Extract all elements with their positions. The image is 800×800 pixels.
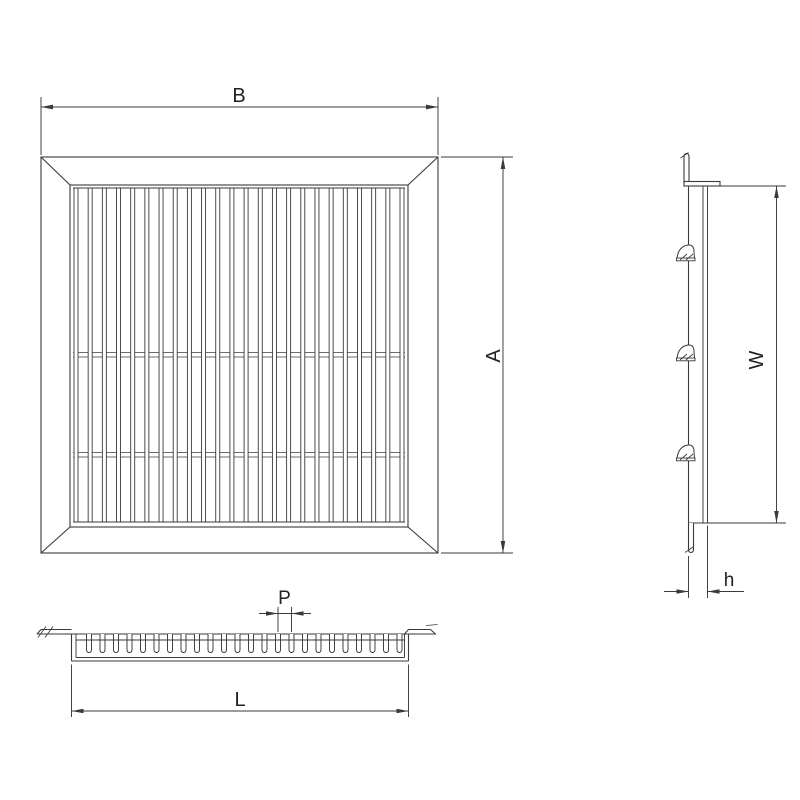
slat-tooth: [303, 634, 308, 653]
arrowhead-down: [501, 541, 506, 553]
dimension-B: B: [41, 85, 438, 155]
break-tick: [45, 627, 53, 638]
grille-slat: [357, 188, 361, 522]
slat-tooth: [384, 634, 389, 653]
top-flange-stub: [684, 154, 689, 184]
grille-slat: [315, 188, 319, 522]
slat-tooth: [208, 634, 213, 653]
side-view: W h: [664, 153, 786, 599]
slat-tooth: [397, 634, 402, 653]
grille-slat: [343, 188, 347, 522]
mounting-clip: [677, 445, 696, 461]
mounting-clip: [677, 345, 696, 361]
dimension-h: h: [664, 526, 744, 599]
clip-spring-arc: [677, 245, 695, 258]
grille-slat: [202, 188, 206, 522]
clip-spring-arc: [677, 345, 695, 358]
mounting-clips: [677, 245, 696, 461]
grille-slat: [329, 188, 333, 522]
arrowhead-down: [774, 511, 779, 523]
slat-tooth: [276, 634, 281, 653]
top-flange-leg: [684, 182, 720, 187]
arrowhead-left: [41, 105, 53, 110]
slat-tooth: [330, 634, 335, 653]
grille-slat: [301, 188, 305, 522]
arrowhead-up: [774, 186, 779, 198]
arrowhead-right: [397, 709, 409, 714]
bottom-section-view: P L: [37, 588, 438, 717]
dimension-P: P: [259, 588, 311, 632]
clip-base: [677, 458, 696, 461]
dimension-L: L: [72, 665, 409, 718]
break-tick: [426, 625, 438, 626]
left-flange-end: [37, 630, 41, 635]
slat-tooth: [154, 634, 159, 653]
right-flange-end: [431, 630, 436, 635]
grille-slat: [287, 188, 291, 522]
slat-tooth: [168, 634, 173, 653]
dimension-label-L: L: [234, 689, 245, 711]
dimension-label-h: h: [724, 570, 735, 591]
slat-tooth: [343, 634, 348, 653]
grille-slat: [400, 188, 404, 522]
slat-tooth: [249, 634, 254, 653]
grille-slat: [173, 188, 177, 522]
grille-slat: [159, 188, 163, 522]
grille-slat: [272, 188, 276, 522]
slat-tooth: [87, 634, 92, 653]
slat-tooth: [100, 634, 105, 653]
grille-slat: [131, 188, 135, 522]
grille-slat: [230, 188, 234, 522]
clip-base: [677, 258, 696, 261]
arrowhead-right: [266, 611, 278, 616]
grille-slat: [88, 188, 92, 522]
slat-tooth: [316, 634, 321, 653]
mounting-clip: [677, 245, 696, 261]
slat-tooth: [127, 634, 132, 653]
dimension-label-W: W: [746, 350, 768, 369]
grille-slat: [74, 188, 78, 522]
grille-slat: [216, 188, 220, 522]
slat-tooth: [181, 634, 186, 653]
slat-tooth: [222, 634, 227, 653]
clip-spring-arc: [677, 445, 695, 458]
right-flange-join: [405, 630, 409, 635]
slat-tooth: [114, 634, 119, 653]
slat-tooth: [289, 634, 294, 653]
arrowhead-right: [426, 105, 438, 110]
dimension-label-B: B: [232, 85, 245, 107]
grille-slat: [386, 188, 390, 522]
slat-tooth: [357, 634, 362, 653]
arrowhead-up: [501, 157, 506, 169]
drawing-sheet: B A W: [0, 0, 800, 800]
slat-tooth: [370, 634, 375, 653]
slat-tooth: [262, 634, 267, 653]
dimension-A: A: [441, 157, 513, 553]
grille-slat: [244, 188, 248, 522]
technical-drawing: B A W: [0, 0, 800, 800]
dimension-label-A: A: [483, 349, 505, 363]
slat-teeth: [87, 634, 403, 653]
slat-tooth: [141, 634, 146, 653]
arrowhead-left: [292, 611, 304, 616]
dimension-W: W: [746, 186, 779, 523]
grille-slat: [187, 188, 191, 522]
dimension-label-P: P: [278, 588, 291, 609]
arrowhead-left: [72, 709, 84, 714]
front-view: B A: [41, 85, 513, 553]
grille-slat: [145, 188, 149, 522]
clip-base: [677, 358, 696, 361]
slat-tooth: [235, 634, 240, 653]
grille-slat: [102, 188, 106, 522]
slat-tooth: [195, 634, 200, 653]
grille-slat: [258, 188, 262, 522]
arrowhead-left: [708, 589, 720, 594]
arrowhead-right: [677, 589, 689, 594]
grille-slat: [117, 188, 121, 522]
grille-slat: [372, 188, 376, 522]
